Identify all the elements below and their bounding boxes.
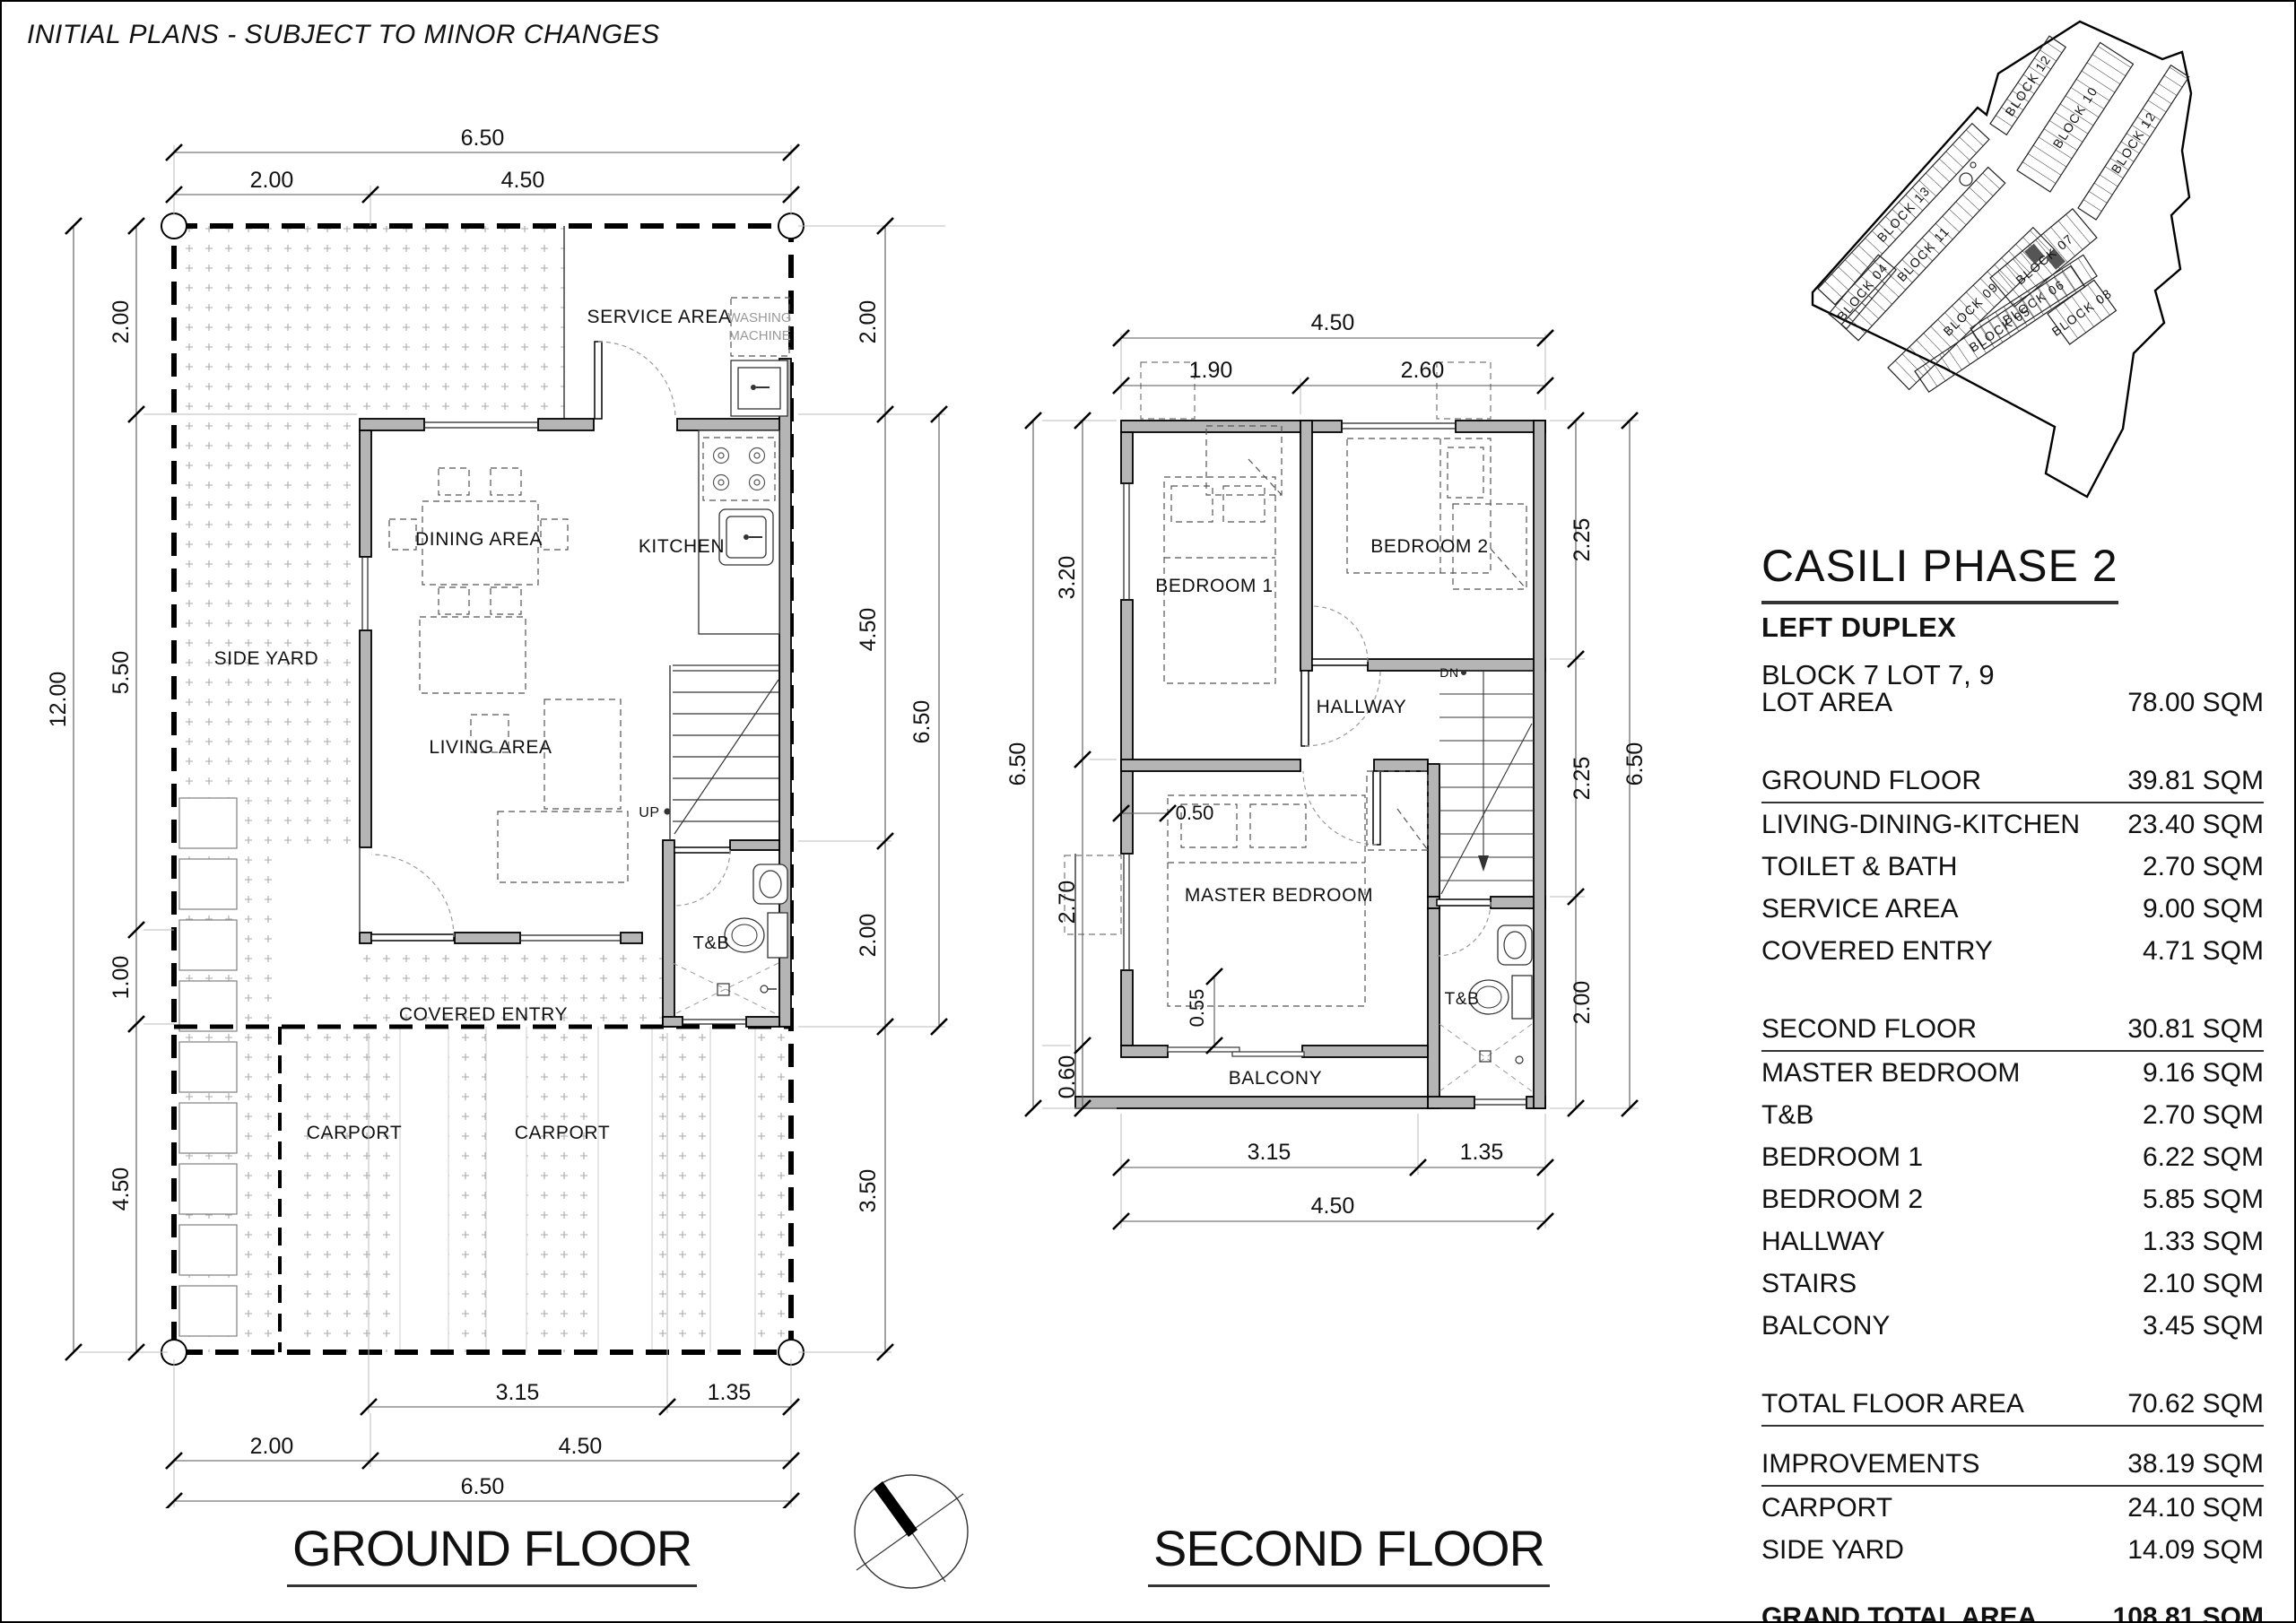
dim: 6.50	[461, 126, 505, 151]
table-row: BEDROOM 16.22 SQM	[1761, 1136, 2264, 1178]
table-row: SIDE YARD14.09 SQM	[1761, 1529, 2264, 1571]
row-value: 2.10 SQM	[2143, 1269, 2264, 1299]
dim: 4.50	[1311, 310, 1355, 335]
stairs	[665, 665, 778, 834]
kitchen-fixtures	[699, 298, 789, 634]
label-carport-b: CARPORT	[515, 1123, 611, 1143]
table-row: COVERED ENTRY4.71 SQM	[1761, 930, 2264, 972]
dim: 1.00	[109, 956, 134, 1000]
row-value: 108.81 SQM	[2113, 1602, 2264, 1623]
row-label: CARPORT	[1761, 1493, 1892, 1523]
site-map: BLOCK 13 BLOCK 11 BLOCK 12 BLOCK 10 BLOC…	[1782, 9, 2213, 511]
disclaimer-note: INITIAL PLANS - SUBJECT TO MINOR CHANGES	[27, 20, 660, 50]
dim: 5.50	[109, 651, 134, 695]
dim: 2.00	[250, 168, 294, 193]
label-service-area: SERVICE AREA	[587, 307, 732, 327]
dim: 2.25	[1570, 518, 1595, 562]
row-value: 9.16 SQM	[2143, 1058, 2264, 1089]
label-side-yard: SIDE YARD	[214, 648, 319, 669]
dim: 6.50	[1006, 742, 1031, 786]
dim: 3.20	[1055, 556, 1080, 600]
ground-floor-plan: SERVICE AREA WASHING MACHINE DINING AREA…	[38, 109, 997, 1508]
label-tnb: T&B	[693, 933, 730, 953]
label-washing-2: MACHINE	[728, 328, 790, 343]
row-label: LOT AREA	[1761, 688, 1892, 718]
north-arrow-icon	[847, 1467, 979, 1600]
dim: 1.35	[708, 1380, 752, 1405]
row-value: 39.81 SQM	[2127, 766, 2264, 796]
label-up: UP	[639, 805, 659, 820]
dim: 1.90	[1189, 358, 1233, 383]
label-bedroom1: BEDROOM 1	[1155, 576, 1273, 596]
dim: 3.15	[496, 1380, 540, 1405]
dim: 4.50	[1311, 1193, 1355, 1219]
dim: 1.35	[1460, 1140, 1504, 1165]
table-row: LIVING-DINING-KITCHEN23.40 SQM	[1761, 803, 2264, 846]
label-dn: DN	[1439, 665, 1458, 680]
row-value: 2.70 SQM	[2143, 852, 2264, 882]
dim: 6.50	[1622, 742, 1648, 786]
label-carport-a: CARPORT	[307, 1123, 403, 1143]
table-row: TOILET & BATH2.70 SQM	[1761, 846, 2264, 888]
dim: 0.60	[1055, 1055, 1080, 1099]
table-row: CARPORT24.10 SQM	[1761, 1487, 2264, 1529]
stepping-stones	[179, 798, 237, 1336]
row-label: MASTER BEDROOM	[1761, 1058, 2020, 1089]
row-label: STAIRS	[1761, 1269, 1857, 1299]
row-label: HALLWAY	[1761, 1227, 1885, 1257]
row-value: 24.10 SQM	[2127, 1493, 2264, 1523]
dim: 2.25	[1570, 757, 1595, 801]
row-value: 6.22 SQM	[2143, 1142, 2264, 1173]
dim: 2.70	[1055, 881, 1080, 924]
second-floor-plan: BEDROOM 1 BEDROOM 2 HALLWAY MASTER BEDRO…	[1006, 253, 1688, 1419]
area-table: LOT AREA78.00 SQM GROUND FLOOR39.81 SQM …	[1761, 681, 2264, 1623]
sf-dimensions: 4.50 1.90 2.60 3.20 2.70 0.60 6.50 2.25 …	[1006, 310, 1648, 1229]
table-row: BEDROOM 25.85 SQM	[1761, 1178, 2264, 1220]
row-label: LIVING-DINING-KITCHEN	[1761, 810, 2080, 840]
label-dining: DINING AREA	[415, 529, 543, 550]
row-value: 5.85 SQM	[2143, 1185, 2264, 1215]
row-value: 23.40 SQM	[2127, 810, 2264, 840]
yard-hatch	[174, 226, 791, 1352]
row-label: BALCONY	[1761, 1311, 1890, 1341]
dim: 4.50	[501, 168, 545, 193]
table-row: GROUND FLOOR39.81 SQM	[1761, 759, 2264, 803]
dim: 6.50	[461, 1474, 505, 1499]
row-label: COVERED ENTRY	[1761, 936, 1993, 967]
row-label: TOTAL FLOOR AREA	[1761, 1389, 2024, 1419]
doors	[371, 342, 730, 941]
row-label: TOILET & BATH	[1761, 852, 1957, 882]
label-bedroom2: BEDROOM 2	[1370, 536, 1488, 557]
dim: 2.00	[250, 1434, 294, 1459]
table-row: STAIRS2.10 SQM	[1761, 1263, 2264, 1305]
row-value: 9.00 SQM	[2143, 894, 2264, 924]
row-label: SECOND FLOOR	[1761, 1014, 1977, 1045]
row-value: 2.70 SQM	[2143, 1100, 2264, 1131]
dim: 0.50	[1176, 802, 1214, 824]
dim: 12.00	[46, 672, 71, 728]
dim: 2.00	[856, 300, 881, 344]
ground-floor-title: GROUND FLOOR	[287, 1519, 697, 1587]
dim: 2.00	[856, 914, 881, 958]
second-floor-title: SECOND FLOOR	[1148, 1519, 1550, 1587]
row-label: IMPROVEMENTS	[1761, 1449, 1979, 1480]
row-value: 1.33 SQM	[2143, 1227, 2264, 1257]
row-label: BEDROOM 1	[1761, 1142, 1923, 1173]
project-subtitle: LEFT DUPLEX	[1761, 612, 1956, 644]
row-label: BEDROOM 2	[1761, 1185, 1923, 1215]
dim: 6.50	[909, 700, 935, 744]
dim: 3.50	[856, 1169, 881, 1213]
dim: 3.15	[1248, 1140, 1291, 1165]
label-sf-tnb: T&B	[1445, 990, 1480, 1009]
label-washing-1: WASHING	[727, 310, 791, 325]
row-value: 38.19 SQM	[2127, 1449, 2264, 1480]
table-row: LOT AREA78.00 SQM	[1761, 681, 2264, 724]
label-kitchen: KITCHEN	[639, 536, 725, 557]
dim: 4.50	[109, 1167, 134, 1211]
label-hallway: HALLWAY	[1317, 697, 1407, 717]
row-label: T&B	[1761, 1100, 1813, 1131]
table-row-grand-total: GRAND TOTAL AREA108.81 SQM	[1761, 1596, 2264, 1623]
row-value: 70.62 SQM	[2127, 1389, 2264, 1419]
row-value: 4.71 SQM	[2143, 936, 2264, 967]
row-value: 78.00 SQM	[2127, 688, 2264, 718]
label-covered-entry: COVERED ENTRY	[399, 1004, 568, 1025]
sf-furniture	[1065, 362, 1526, 1006]
table-row: T&B2.70 SQM	[1761, 1094, 2264, 1136]
dim: 2.60	[1401, 358, 1445, 383]
table-row: IMPROVEMENTS38.19 SQM	[1761, 1443, 2264, 1487]
floor-plan-sheet: INITIAL PLANS - SUBJECT TO MINOR CHANGES	[0, 0, 2296, 1623]
label-balcony: BALCONY	[1229, 1068, 1323, 1089]
row-value: 14.09 SQM	[2127, 1535, 2264, 1566]
row-label: GRAND TOTAL AREA	[1761, 1602, 2037, 1623]
table-row: TOTAL FLOOR AREA70.62 SQM	[1761, 1383, 2264, 1427]
dim: 2.00	[109, 300, 134, 344]
table-row: SECOND FLOOR30.81 SQM	[1761, 1008, 2264, 1052]
table-row: MASTER BEDROOM9.16 SQM	[1761, 1052, 2264, 1094]
dim: 4.50	[856, 608, 881, 652]
dim: 0.55	[1186, 989, 1208, 1028]
table-row: SERVICE AREA9.00 SQM	[1761, 888, 2264, 930]
row-value: 30.81 SQM	[2127, 1014, 2264, 1045]
dim: 2.00	[1570, 981, 1595, 1025]
table-row: HALLWAY1.33 SQM	[1761, 1220, 2264, 1263]
table-row: BALCONY3.45 SQM	[1761, 1305, 2264, 1347]
label-master: MASTER BEDROOM	[1185, 885, 1373, 906]
row-label: SERVICE AREA	[1761, 894, 1959, 924]
project-title: CASILI PHASE 2	[1761, 540, 2118, 604]
row-label: SIDE YARD	[1761, 1535, 1904, 1566]
toilet-bath-fixtures	[673, 864, 787, 1015]
label-living: LIVING AREA	[429, 737, 552, 758]
row-value: 3.45 SQM	[2143, 1311, 2264, 1341]
sf-stairs	[1439, 670, 1534, 894]
dim: 4.50	[559, 1434, 603, 1459]
row-label: GROUND FLOOR	[1761, 766, 1981, 796]
